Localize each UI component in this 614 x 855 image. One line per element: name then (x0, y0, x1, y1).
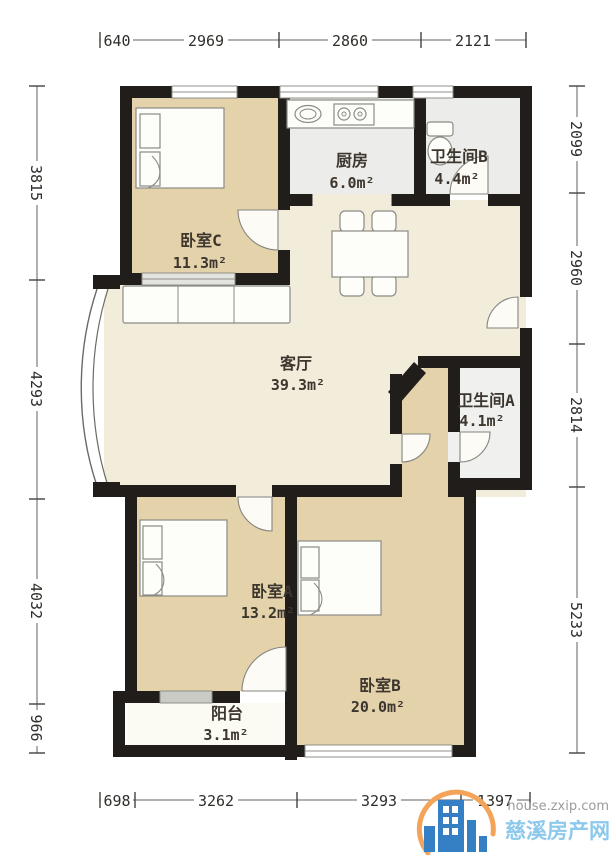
floorplan-svg: 卧室C 11.3m² 厨房 6.0m² 卫生间B 4.4m² 客厅 39.3m²… (0, 0, 614, 855)
label-bathroom-b: 卫生间B (430, 147, 488, 166)
area-bedroom-a: 13.2m² (241, 604, 295, 622)
watermark-site-name: 慈溪房产网 (505, 819, 610, 843)
area-bathroom-b: 4.4m² (434, 170, 479, 188)
label-kitchen: 厨房 (336, 151, 368, 170)
opening-balcony (160, 691, 212, 703)
dim-left-2: 4293 (27, 371, 45, 407)
opening-kitchen (312, 194, 392, 206)
bed-bedroom-a (140, 520, 227, 596)
dim-right-4: 5233 (567, 602, 585, 638)
dim-bottom-3: 3293 (361, 792, 397, 810)
bed-bedroom-c (136, 108, 224, 188)
area-balcony: 3.1m² (203, 726, 248, 744)
area-bedroom-b: 20.0m² (351, 698, 405, 716)
outside-mask (88, 195, 120, 277)
area-living: 39.3m² (271, 376, 325, 394)
area-bedroom-c: 11.3m² (173, 254, 227, 272)
dim-top-4: 2121 (455, 32, 491, 50)
area-bathroom-a: 4.1m² (459, 412, 504, 430)
bed-bedroom-b (298, 541, 381, 615)
dim-top-2: 2969 (188, 32, 224, 50)
window-bedroom-b-bottom (305, 745, 452, 757)
dim-bottom-1: 698 (103, 792, 130, 810)
window-bathroom-b-top (413, 86, 453, 98)
dim-left-4: 966 (27, 714, 45, 741)
sofa (123, 286, 290, 323)
label-living: 客厅 (280, 354, 312, 373)
dim-right-3: 2814 (567, 397, 585, 433)
label-bathroom-a: 卫生间A (457, 391, 515, 410)
floorplan-canvas: 卧室C 11.3m² 厨房 6.0m² 卫生间B 4.4m² 客厅 39.3m²… (0, 0, 614, 855)
label-balcony: 阳台 (211, 704, 243, 723)
dim-bottom-2: 3262 (198, 792, 234, 810)
label-bedroom-a: 卧室A (251, 582, 293, 601)
window-bedroom-c-bottom (142, 273, 235, 285)
dim-top-1: 640 (103, 32, 130, 50)
dim-left-1: 3815 (27, 165, 45, 201)
dim-top-3: 2860 (332, 32, 368, 50)
label-bedroom-b: 卧室B (359, 676, 401, 695)
dim-right-2: 2960 (567, 250, 585, 286)
dim-left-3: 4032 (27, 583, 45, 619)
area-kitchen: 6.0m² (329, 174, 374, 192)
watermark-domain: house.zxip.com (507, 799, 609, 814)
label-bedroom-c: 卧室C (180, 231, 222, 250)
kitchen-counter (287, 100, 414, 128)
window-bedroom-c-top (172, 86, 237, 98)
dim-right-1: 2099 (567, 121, 585, 157)
window-kitchen-top (280, 86, 378, 98)
